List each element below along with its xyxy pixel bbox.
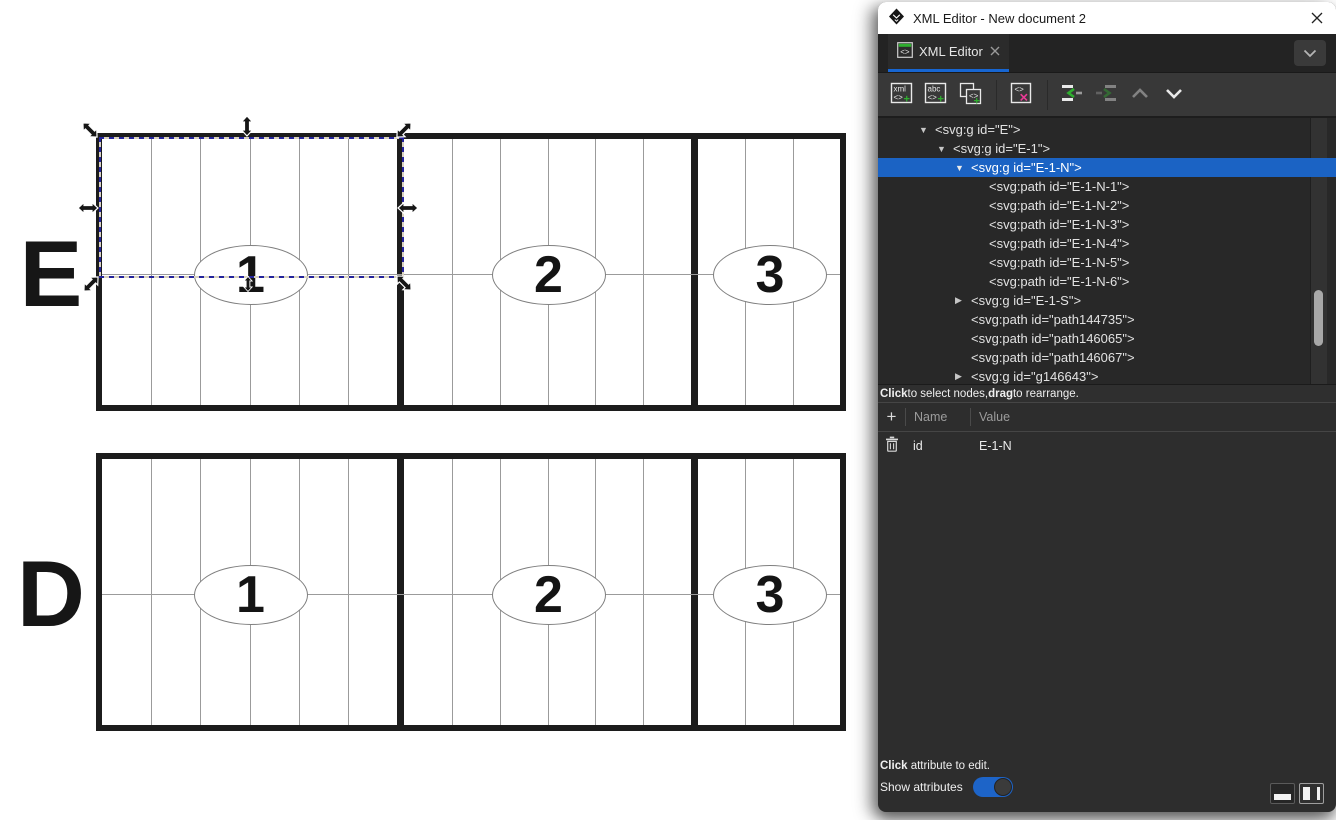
- drawing-row-D[interactable]: 123: [96, 453, 846, 731]
- tree-node-row[interactable]: <svg:path id="path146067">: [878, 348, 1336, 367]
- move-node-down-button[interactable]: [1160, 81, 1188, 109]
- chevron-up-icon: [1127, 80, 1153, 109]
- column-line: [151, 459, 152, 725]
- tab-strip: <> XML Editor: [878, 34, 1336, 73]
- xml-node-tree[interactable]: ▼<svg:g id="E">▼<svg:g id="E-1">▼<svg:g …: [878, 118, 1336, 384]
- tree-node-label: <svg:path id="E-1-N-3">: [989, 217, 1129, 232]
- xml-toolbar: xml <> + abc <> + <> + <> ✕: [878, 73, 1336, 118]
- tree-node-row[interactable]: <svg:path id="E-1-N-2">: [878, 196, 1336, 215]
- close-icon[interactable]: [1308, 9, 1326, 27]
- attribute-value[interactable]: E-1-N: [970, 439, 1012, 453]
- expander-collapse-icon[interactable]: ▼: [937, 144, 953, 154]
- dialog-title: XML Editor - New document 2: [913, 11, 1086, 26]
- delete-node-icon: <> ✕: [1008, 80, 1034, 109]
- tree-node-label: <svg:path id="path146067">: [971, 350, 1135, 365]
- section-number-ellipse[interactable]: 2: [492, 565, 606, 625]
- value-column-header: Value: [971, 410, 1010, 424]
- hint-text-part: to rearrange.: [1013, 388, 1079, 400]
- tree-node-label: <svg:path id="path146065">: [971, 331, 1135, 346]
- tree-node-row[interactable]: ▶<svg:g id="g146643">: [878, 367, 1336, 384]
- tree-node-row[interactable]: <svg:path id="E-1-N-5">: [878, 253, 1336, 272]
- column-line: [348, 139, 349, 405]
- hint-text-part: to select nodes,: [908, 388, 989, 400]
- tree-node-label: <svg:path id="E-1-N-1">: [989, 179, 1129, 194]
- expander-expand-icon[interactable]: ▶: [955, 371, 971, 382]
- panel-menu-button[interactable]: [1294, 40, 1326, 66]
- tree-node-row[interactable]: <svg:path id="E-1-N-1">: [878, 177, 1336, 196]
- svg-text:<>: <>: [894, 93, 904, 102]
- trash-icon: [885, 436, 899, 455]
- panel-footer: Click attribute to edit. Show attributes: [878, 757, 1336, 812]
- section-divider: [397, 453, 404, 731]
- new-text-node-button[interactable]: abc <> +: [922, 81, 950, 109]
- inkscape-canvas[interactable]: 123E123D XML Editor - New document 2: [0, 0, 1336, 820]
- tree-node-row[interactable]: ▼<svg:g id="E-1-N">: [878, 158, 1336, 177]
- tree-node-row[interactable]: <svg:path id="E-1-N-3">: [878, 215, 1336, 234]
- attribute-row[interactable]: id E-1-N: [878, 432, 1336, 459]
- row-label-D[interactable]: D: [14, 541, 86, 647]
- tab-close-icon[interactable]: [990, 44, 1000, 59]
- tree-node-row[interactable]: <svg:path id="path144735">: [878, 310, 1336, 329]
- tree-node-label: <svg:path id="E-1-N-4">: [989, 236, 1129, 251]
- unindent-node-button[interactable]: [1058, 81, 1086, 109]
- add-attribute-button[interactable]: +: [878, 407, 905, 427]
- svg-text:+: +: [904, 94, 910, 106]
- tree-node-row[interactable]: ▶<svg:g id="E-1-S">: [878, 291, 1336, 310]
- tree-node-label: <svg:g id="E-1-N">: [971, 160, 1082, 175]
- tab-xml-editor[interactable]: <> XML Editor: [888, 34, 1009, 72]
- delete-node-button[interactable]: <> ✕: [1007, 81, 1035, 109]
- tree-node-row[interactable]: <svg:path id="E-1-N-6">: [878, 272, 1336, 291]
- tree-node-row[interactable]: ▼<svg:g id="E-1">: [878, 139, 1336, 158]
- vertical-split-icon: [1317, 787, 1320, 800]
- name-column-header: Name: [906, 410, 970, 424]
- layout-horizontal-button[interactable]: [1270, 783, 1295, 804]
- tree-hint-text: Click to select nodes, drag to rearrange…: [878, 384, 1336, 402]
- column-line: [151, 139, 152, 405]
- section-number-ellipse[interactable]: 3: [713, 565, 827, 625]
- indent-node-button[interactable]: [1092, 81, 1120, 109]
- row-label-E[interactable]: E: [14, 221, 86, 327]
- tree-node-label: <svg:path id="E-1-N-5">: [989, 255, 1129, 270]
- selection-scale-handle-e[interactable]: [397, 201, 419, 215]
- expander-expand-icon[interactable]: ▶: [955, 295, 971, 306]
- tree-node-label: <svg:path id="E-1-N-2">: [989, 198, 1129, 213]
- expander-collapse-icon[interactable]: ▼: [955, 163, 971, 173]
- section-number-ellipse[interactable]: 3: [713, 245, 827, 305]
- section-divider: [691, 453, 698, 731]
- column-line: [452, 459, 453, 725]
- duplicate-node-button[interactable]: <> +: [956, 81, 984, 109]
- tree-node-label: <svg:g id="E-1-S">: [971, 293, 1081, 308]
- chevron-down-icon: [1161, 80, 1187, 109]
- tree-node-label: <svg:path id="path144735">: [971, 312, 1135, 327]
- delete-attribute-button[interactable]: [878, 436, 905, 455]
- unindent-node-icon: [1059, 81, 1085, 108]
- dialog-titlebar[interactable]: XML Editor - New document 2: [878, 2, 1336, 34]
- tree-node-row[interactable]: <svg:path id="path146065">: [878, 329, 1336, 348]
- hint-text-part: Click: [880, 760, 908, 772]
- new-element-node-button[interactable]: xml <> +: [888, 81, 916, 109]
- attributes-header: + Name Value: [878, 402, 1336, 432]
- xml-tab-icon: <>: [897, 42, 913, 61]
- hint-text-part: attribute to edit.: [908, 760, 990, 772]
- selection-scale-handle-s[interactable]: [243, 276, 254, 293]
- tree-node-row[interactable]: ▼<svg:g id="E">: [878, 120, 1336, 139]
- chevron-down-icon: [1303, 46, 1317, 61]
- attribute-name[interactable]: id: [905, 439, 970, 453]
- tree-node-label: <svg:g id="g146643">: [971, 369, 1098, 384]
- xml-editor-dialog: XML Editor - New document 2 <> XML Edito…: [878, 2, 1336, 812]
- move-node-up-button[interactable]: [1126, 81, 1154, 109]
- horizontal-split-icon: [1274, 794, 1291, 800]
- toolbar-separator: [1047, 80, 1048, 110]
- tree-node-row[interactable]: <svg:path id="E-1-N-4">: [878, 234, 1336, 253]
- tree-node-label: <svg:path id="E-1-N-6">: [989, 274, 1129, 289]
- column-line: [643, 459, 644, 725]
- column-line: [643, 139, 644, 405]
- layout-vertical-button[interactable]: [1299, 783, 1324, 804]
- column-line: [348, 459, 349, 725]
- svg-text:+: +: [938, 94, 944, 106]
- new-element-node-icon: xml <> +: [889, 80, 915, 109]
- selection-scale-handle-w[interactable]: [77, 201, 99, 215]
- attribute-hint-text: Click attribute to edit.: [880, 760, 1336, 772]
- toolbar-separator: [996, 80, 997, 110]
- section-number-ellipse[interactable]: 2: [492, 245, 606, 305]
- toggle-knob: [994, 778, 1012, 796]
- hint-text-part: drag: [988, 388, 1013, 400]
- svg-text:✕: ✕: [1019, 93, 1029, 105]
- drawing-row-E[interactable]: 123: [96, 133, 846, 411]
- svg-text:<>: <>: [928, 93, 938, 102]
- attributes-empty-area: [878, 459, 1336, 757]
- selection-scale-handle-n[interactable]: [240, 115, 254, 137]
- tree-node-label: <svg:g id="E">: [935, 122, 1020, 137]
- expander-collapse-icon[interactable]: ▼: [919, 125, 935, 135]
- duplicate-node-icon: <> +: [957, 80, 983, 109]
- hint-text-part: Click: [880, 388, 908, 400]
- tab-label: XML Editor: [919, 44, 983, 59]
- column-line: [452, 139, 453, 405]
- svg-text:+: +: [974, 96, 980, 107]
- svg-text:<>: <>: [900, 47, 910, 56]
- indent-node-icon: [1093, 81, 1119, 108]
- tree-node-label: <svg:g id="E-1">: [953, 141, 1050, 156]
- show-attributes-toggle[interactable]: [973, 777, 1013, 797]
- new-text-node-icon: abc <> +: [923, 80, 949, 109]
- selection-dashed-edge: [99, 137, 404, 139]
- section-number-ellipse[interactable]: 1: [194, 565, 308, 625]
- inkscape-logo-icon: [888, 8, 905, 28]
- show-attributes-label: Show attributes: [880, 780, 963, 794]
- selection-dashed-edge: [99, 137, 101, 276]
- section-divider: [691, 133, 698, 411]
- vertical-split-icon: [1303, 787, 1310, 800]
